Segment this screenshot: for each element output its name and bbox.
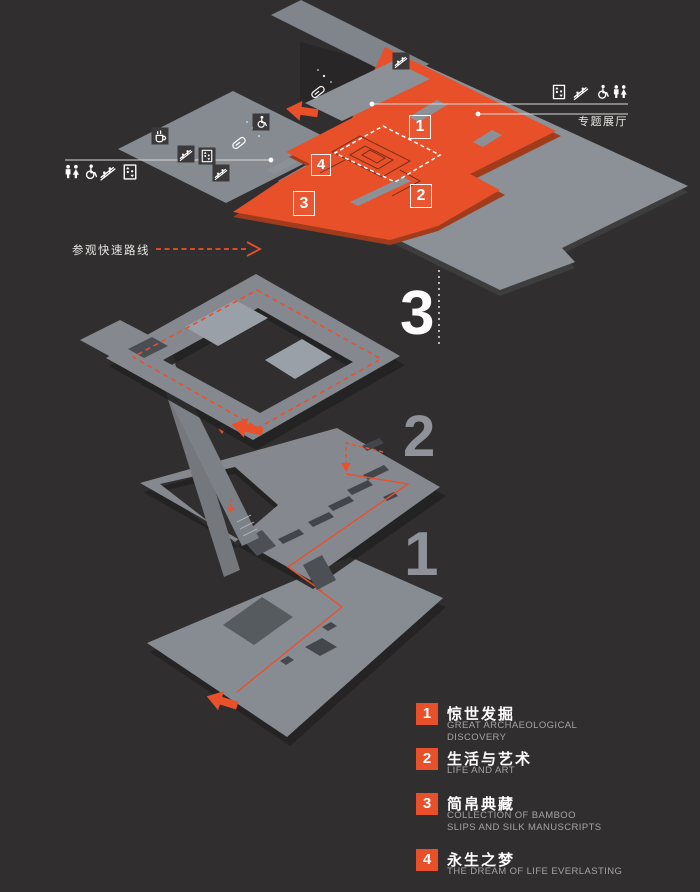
- legend-title-en: THE DREAM OF LIFE EVERLASTING: [447, 866, 632, 878]
- legend-number-badge: 4: [416, 849, 438, 871]
- legend-item: 4 永生之梦 THE DREAM OF LIFE EVERLASTING: [416, 849, 646, 883]
- floor-number-1: 1: [404, 524, 436, 586]
- zone-marker-4: 4: [311, 154, 331, 176]
- special-hall-label: 专题展厅: [556, 113, 628, 129]
- legend-title-en: LIFE AND ART: [447, 765, 632, 777]
- legend-number-badge: 3: [416, 793, 438, 815]
- floor-number-2: 2: [403, 408, 433, 466]
- route-legend-label: 参观快速路线: [72, 242, 150, 258]
- escalator-icon: [393, 53, 410, 70]
- wheelchair-lift-icon: [253, 114, 270, 131]
- cafe-icon: [152, 128, 169, 145]
- floor-number-3: 3: [400, 283, 432, 345]
- legend-number-badge: 1: [416, 703, 438, 725]
- zone-marker-1: 1: [409, 115, 431, 139]
- escalator-icon: [178, 146, 195, 163]
- zone-marker-2: 2: [410, 184, 432, 208]
- elevator-icon: [199, 148, 216, 165]
- legend-item: 1 惊世发掘 GREAT ARCHAEOLOGICAL DISCOVERY: [416, 703, 646, 737]
- legend-item: 2 生活与艺术 LIFE AND ART: [416, 748, 646, 782]
- legend-title-en: COLLECTION OF BAMBOO SLIPS AND SILK MANU…: [447, 810, 607, 833]
- museum-floor-guide: 专题展厅 参观快速路线 1 2 3 4 3 2 1 1 惊世发掘 GREAT A…: [0, 0, 700, 892]
- zone-marker-3: 3: [293, 191, 315, 216]
- legend-item: 3 简帛典藏 COLLECTION OF BAMBOO SLIPS AND SI…: [416, 793, 646, 837]
- legend-number-badge: 2: [416, 748, 438, 770]
- escalator-icon: [213, 165, 230, 182]
- legend-title-en: GREAT ARCHAEOLOGICAL DISCOVERY: [447, 720, 632, 743]
